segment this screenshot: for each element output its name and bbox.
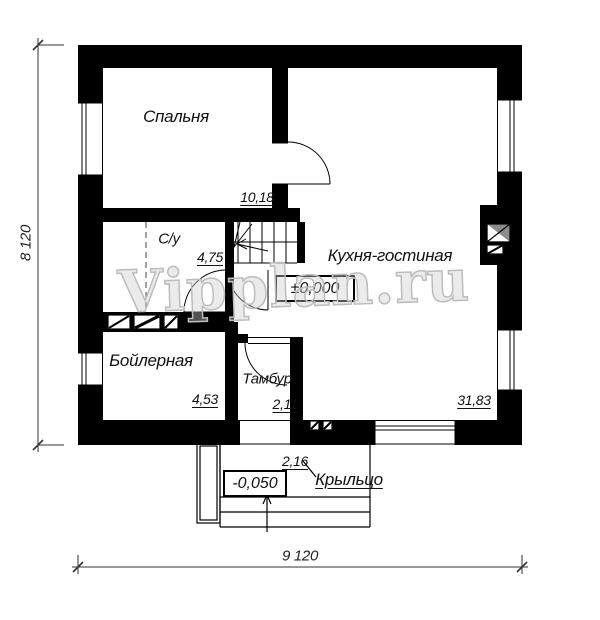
room-area-bathroom: 4,75 [197,249,223,265]
level-mark-porch: -0,050 [223,470,287,497]
text-layer: Спальня 10,18 С/у 4,75 Кухня-гостиная 31… [0,0,600,620]
level-mark-ground: ±0,000 [275,275,355,302]
room-label-kitchen-living: Кухня-гостиная [328,246,452,266]
room-label-boiler: Бойлерная [109,351,193,371]
room-area-kitchen-living: 31,83 [457,392,491,408]
dimension-value-vertical: 8 120 [18,225,35,261]
room-label-bathroom: С/у [158,231,180,248]
room-label-vestibule: Тамбур [242,371,292,388]
room-label-porch: Крыльцо [315,470,383,490]
room-area-vestibule: 2,11 [272,396,297,412]
room-area-bedroom: 10,18 [240,189,274,205]
room-label-bedroom: Спальня [143,107,209,127]
dimension-value-horizontal: 9 120 [282,548,318,565]
floor-plan-canvas: Спальня 10,18 С/у 4,75 Кухня-гостиная 31… [0,0,600,620]
room-area-boiler: 4,53 [192,391,218,407]
room-area-porch: 2,16 [282,453,308,469]
